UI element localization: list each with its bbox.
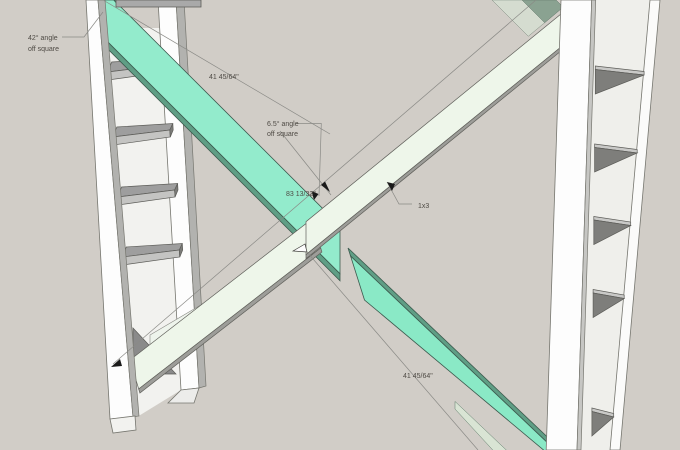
svg-text:off square: off square <box>267 131 298 138</box>
svg-text:6.5° angle: 6.5° angle <box>267 120 299 128</box>
svg-text:41 45/64": 41 45/64" <box>403 373 433 380</box>
svg-text:42° angle: 42° angle <box>28 34 58 42</box>
svg-text:41 45/64": 41 45/64" <box>209 74 239 81</box>
svg-text:83 13/32": 83 13/32" <box>286 191 316 198</box>
svg-text:off square: off square <box>28 46 59 53</box>
svg-text:1x3: 1x3 <box>418 203 429 210</box>
